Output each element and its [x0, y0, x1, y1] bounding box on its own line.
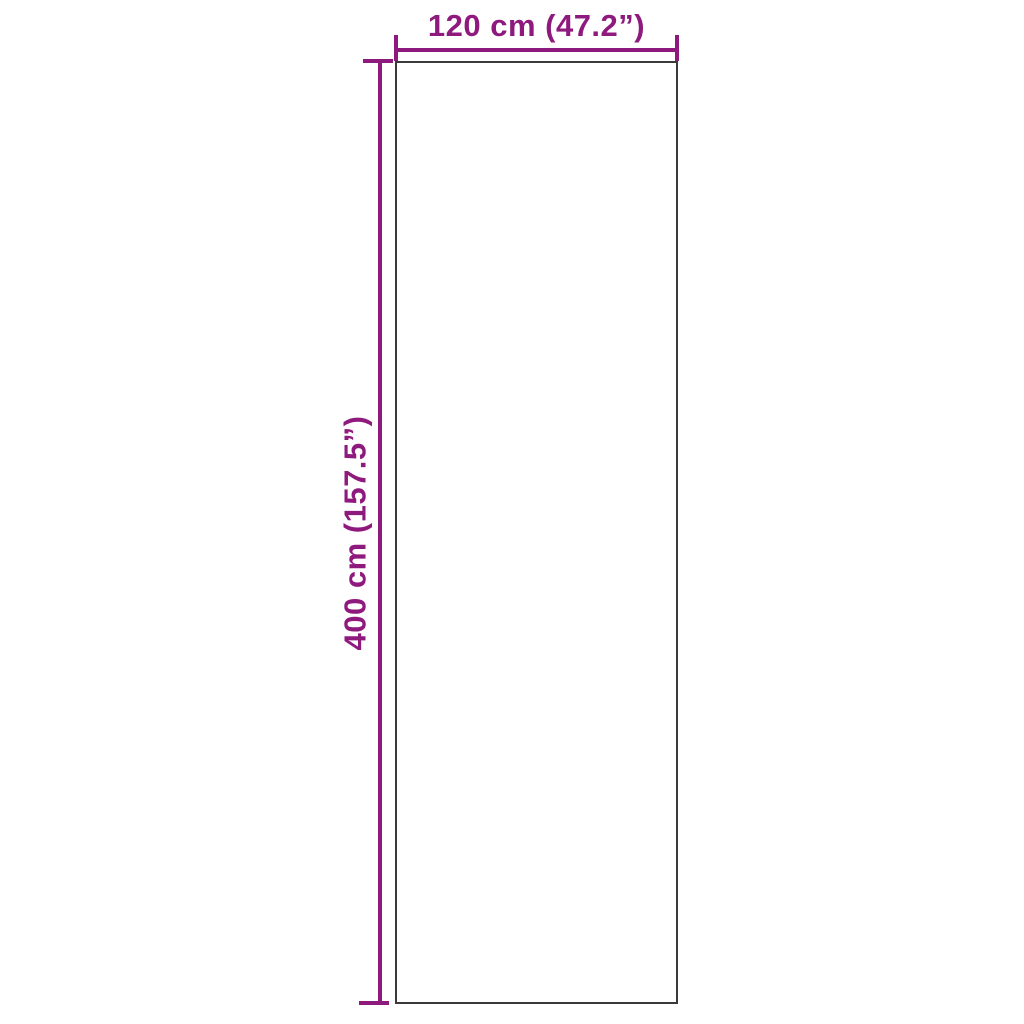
product-outline	[395, 61, 678, 1004]
width-dimension-label: 120 cm (47.2”)	[375, 8, 698, 44]
width-dimension-line	[395, 48, 678, 52]
dimension-diagram: 120 cm (47.2”) 400 cm (157.5”)	[0, 0, 1024, 1024]
height-dimension-line	[378, 61, 382, 1005]
height-dimension-label-text: 400 cm (157.5”)	[337, 416, 373, 651]
height-dimension-label: 400 cm (157.5”)	[333, 61, 377, 1005]
